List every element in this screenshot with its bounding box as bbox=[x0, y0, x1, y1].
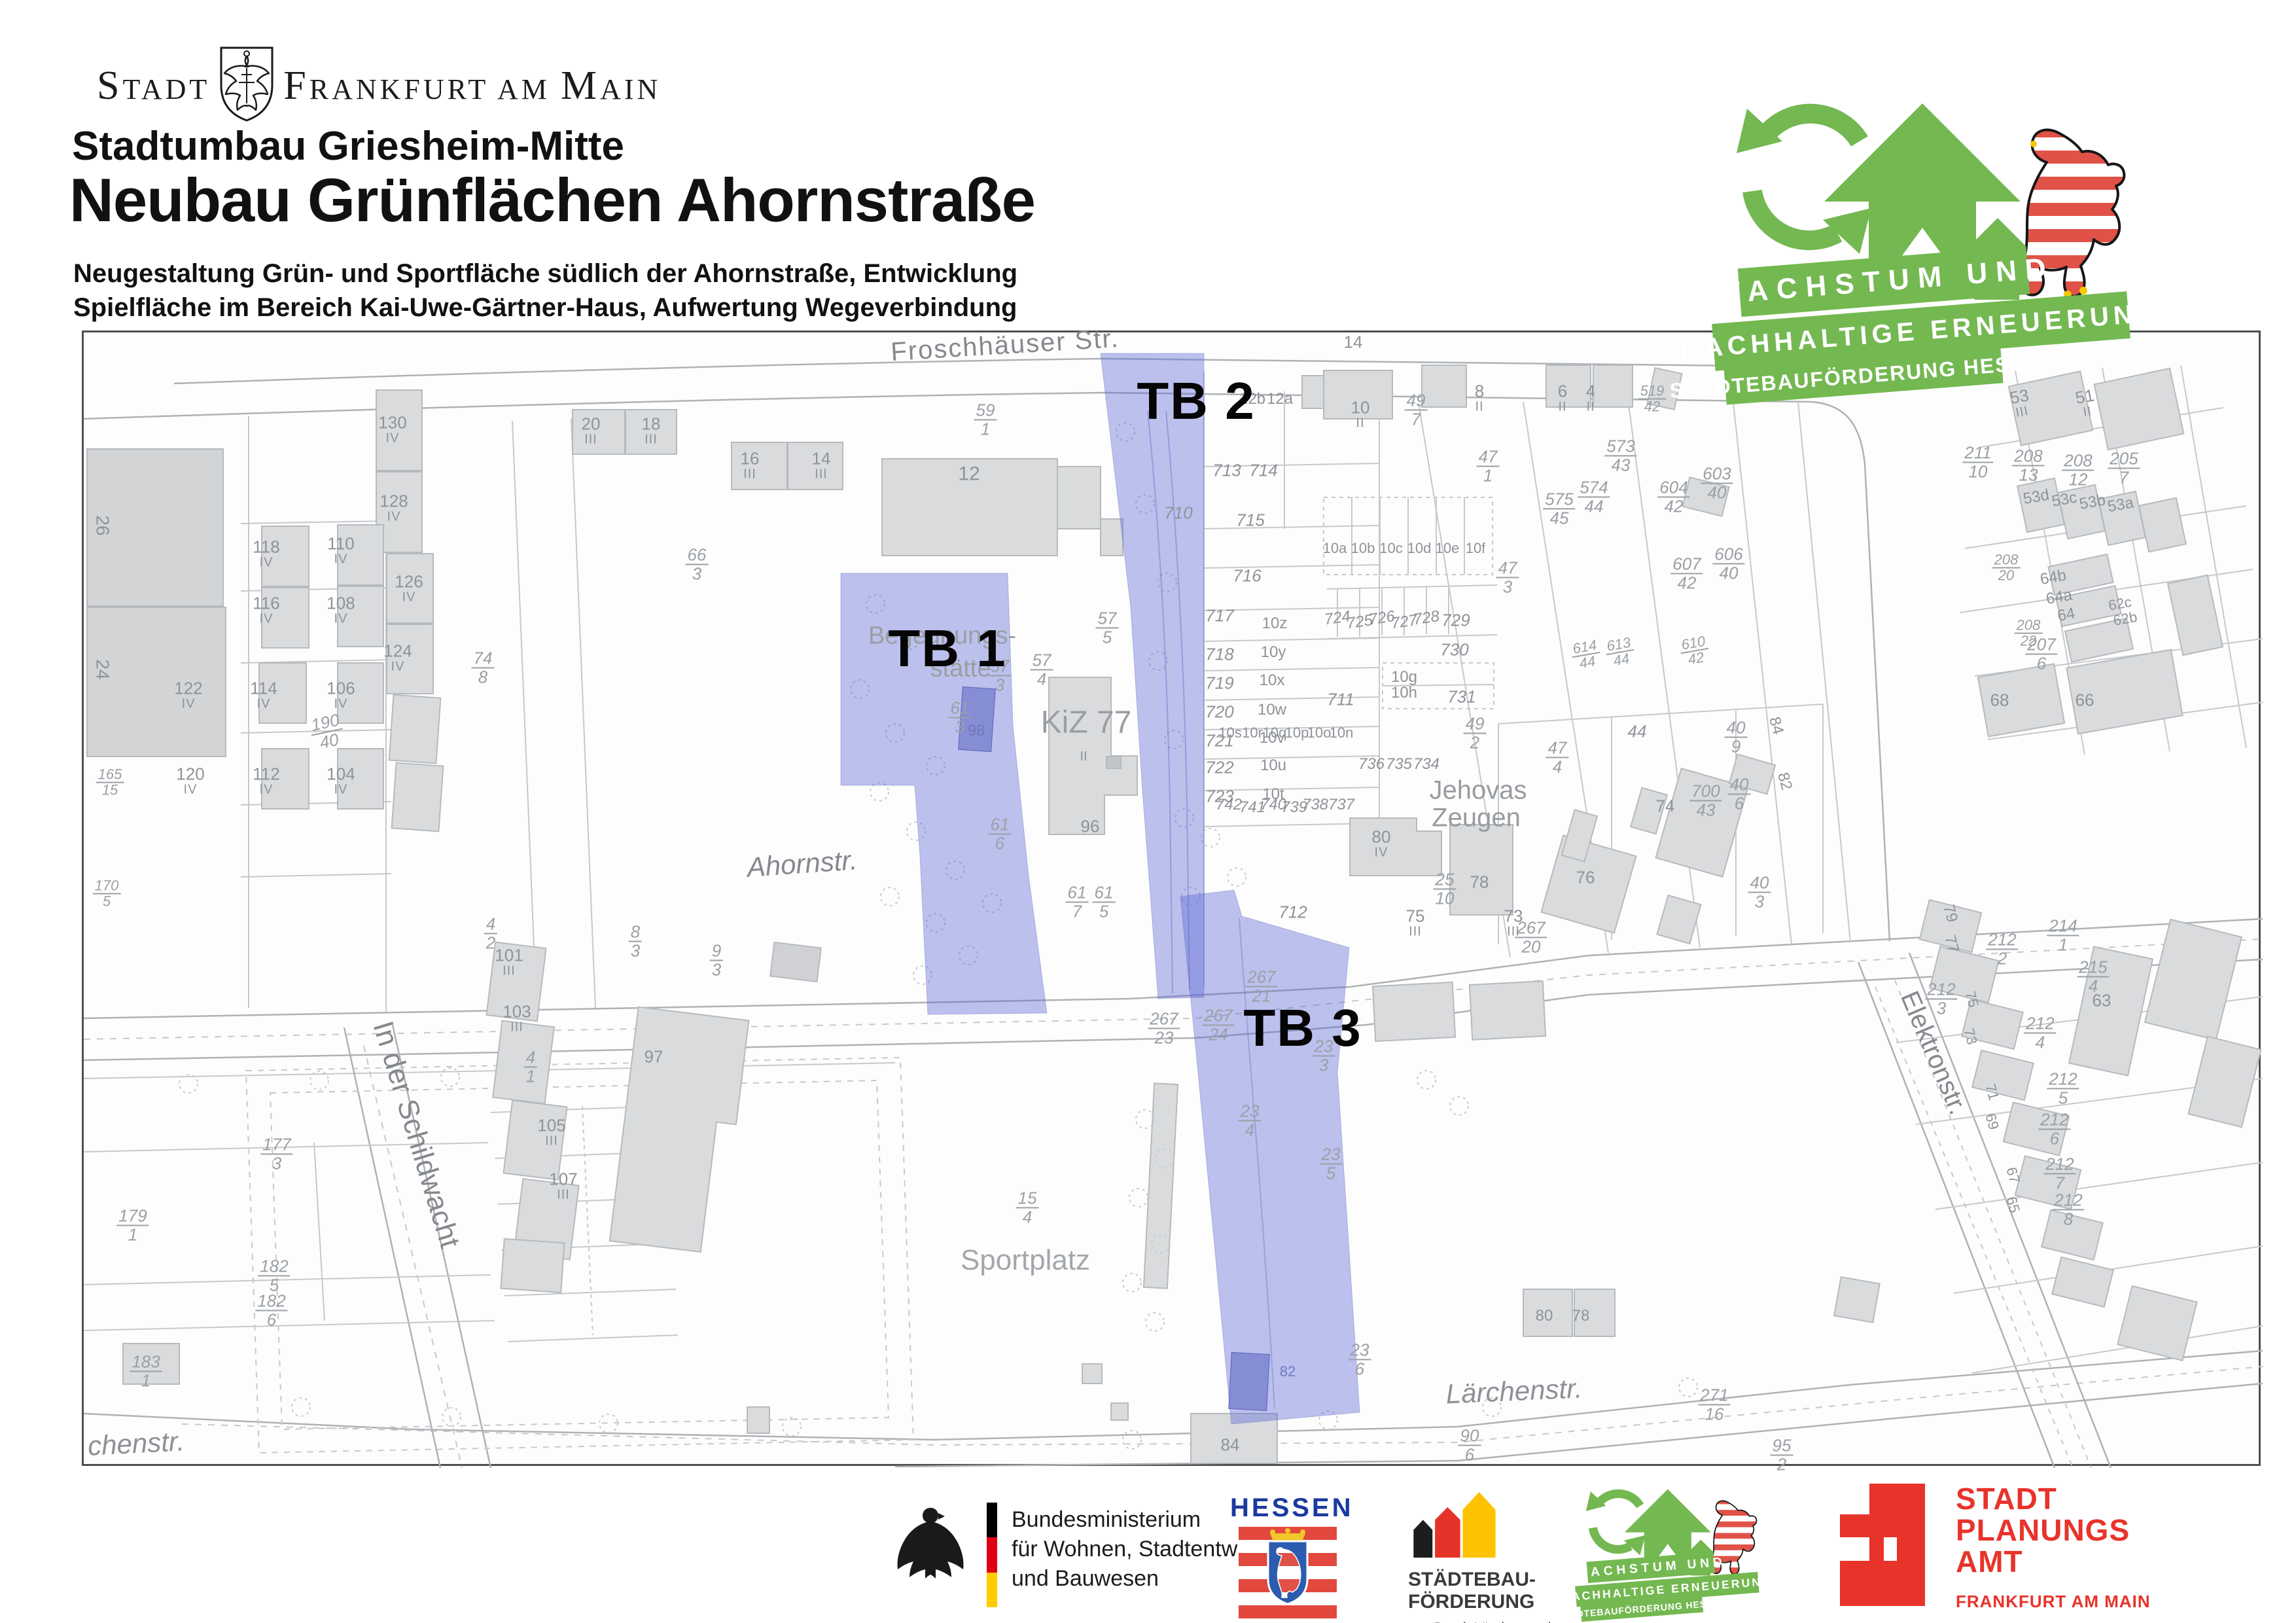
map-parcel-label: 103III bbox=[503, 1003, 531, 1034]
map-parcel-label: 718 bbox=[1205, 646, 1233, 664]
map-parcel-label: 2076 bbox=[2025, 635, 2057, 671]
map-parcel-label: 474 bbox=[1546, 739, 1569, 775]
map-parcel-label: 60340 bbox=[1701, 465, 1733, 501]
map-parcel-label: 26720 bbox=[1515, 919, 1547, 955]
map-parcel-label: 10e bbox=[1436, 541, 1460, 556]
map-parcel-label: 10n bbox=[1330, 726, 1354, 740]
subtitle-line1: Neugestaltung Grün- und Sportfläche südl… bbox=[73, 257, 1017, 291]
map-parcel-label: 1773 bbox=[260, 1135, 292, 1171]
map-parcel-label: 492 bbox=[1464, 715, 1487, 751]
map-name-label: Jehovas bbox=[1430, 776, 1527, 806]
map-parcel-label: 10h bbox=[1391, 685, 1417, 701]
map-parcel-label: 20820 bbox=[1992, 553, 2021, 584]
map-parcel-label: 1791 bbox=[116, 1207, 149, 1243]
map-parcel-label: 663 bbox=[686, 546, 709, 582]
map-parcel-label: 101III bbox=[495, 947, 523, 978]
map-parcel-label: 574 bbox=[1031, 651, 1053, 687]
stb-line2: FÖRDERUNG bbox=[1408, 1591, 1551, 1613]
map-parcel-label: 78 bbox=[1470, 874, 1489, 891]
map-parcel-label: 84 bbox=[1221, 1436, 1240, 1454]
map-parcel-label: 10a bbox=[1323, 541, 1347, 556]
map-parcel-label: 742 bbox=[1216, 797, 1242, 813]
map-parcel-label: 10g bbox=[1391, 669, 1417, 685]
map-parcel-label: 57444 bbox=[1578, 478, 1610, 514]
map-parcel-label: 126IV bbox=[395, 573, 423, 604]
map-parcel-label: 737 bbox=[1328, 797, 1354, 813]
map-parcel-label: 10w bbox=[1258, 702, 1286, 718]
map-parcel-label: 116IV bbox=[253, 595, 279, 626]
map-parcel-label: 2510 bbox=[1434, 870, 1457, 906]
map-parcel-label: 710 bbox=[1164, 505, 1192, 522]
map-parcel-label: 1826 bbox=[255, 1292, 287, 1328]
map-parcel-label: 76 bbox=[1576, 869, 1595, 887]
city-logo-stadt: STADT bbox=[97, 63, 210, 109]
map-parcel-label: 63 bbox=[2093, 992, 2111, 1010]
map-parcel-label: 10x bbox=[1260, 673, 1285, 688]
cadastral-map: 5911271371471571071671710z71810y71910x72… bbox=[82, 330, 2261, 1466]
map-parcel-label: 2154 bbox=[2077, 958, 2109, 994]
map-parcel-label: 12a bbox=[1267, 391, 1293, 407]
map-parcel-label: 722 bbox=[1205, 759, 1233, 777]
spa-line2: PLANUNGS bbox=[1956, 1514, 2151, 1546]
map-name-label: Lärchenstr. bbox=[1445, 1372, 1583, 1410]
funding-badge: WACHSTUM UND NACHHALTIGE ERNEUERUNG STÄD… bbox=[1713, 98, 2184, 406]
map-parcel-label: 10II bbox=[1351, 399, 1370, 430]
spa-subline: FRANKFURT AM MAIN bbox=[1956, 1592, 2151, 1612]
funding-badge-small: WACHSTUM UND NACHHALTIGE ERNEUERUNG STÄD… bbox=[1576, 1487, 1783, 1622]
three-houses-icon bbox=[1408, 1491, 1500, 1560]
map-parcel-label: 10o bbox=[1307, 726, 1332, 740]
map-parcel-label: 26 bbox=[93, 515, 112, 535]
map-parcel-label: 16515 bbox=[96, 768, 124, 798]
hessen-wordmark: HESSEN bbox=[1230, 1493, 1345, 1523]
plan-poster: STADT FRANKFURT A​M MAIN Stadtumbau Grie… bbox=[0, 0, 2296, 1623]
map-parcel-label: 60640 bbox=[1712, 545, 1744, 581]
map-parcel-label: 615 bbox=[1093, 883, 1116, 919]
map-parcel-label: 26723 bbox=[1148, 1010, 1180, 1046]
map-parcel-label: 105III bbox=[537, 1117, 565, 1148]
staedtebaufoerderung-logo: STÄDTEBAU- FÖRDERUNG von Bund, Ländern u… bbox=[1408, 1491, 1551, 1623]
map-parcel-label: 82 bbox=[1280, 1364, 1296, 1379]
subtitle-line2: Spielfläche im Bereich Kai-Uwe-Gärtner-H… bbox=[73, 291, 1017, 325]
map-parcel-label: 1831 bbox=[130, 1353, 162, 1389]
subtitle: Neugestaltung Grün- und Sportfläche südl… bbox=[73, 257, 1017, 325]
map-parcel-label: 26724 bbox=[1202, 1007, 1234, 1043]
stb-small1: von Bund, Ländern und bbox=[1408, 1620, 1551, 1623]
map-parcel-label: 61042 bbox=[1678, 633, 1711, 669]
hessen-logo: HESSEN bbox=[1230, 1493, 1345, 1622]
map-parcel-label: 720 bbox=[1205, 704, 1233, 721]
map-parcel-label: 473 bbox=[1496, 559, 1519, 595]
map-parcel-label: 41 bbox=[524, 1048, 537, 1084]
map-parcel-label: 497 bbox=[1405, 391, 1428, 427]
map-parcel-label: 471 bbox=[1477, 448, 1500, 484]
map-parcel-label: 719 bbox=[1205, 675, 1233, 692]
map-parcel-label: 715 bbox=[1236, 512, 1264, 529]
zone-label: TB 1 bbox=[888, 618, 1006, 679]
map-name-label: KiZ 77 bbox=[1041, 705, 1132, 741]
map-parcel-label: 617 bbox=[1066, 883, 1089, 919]
map-parcel-label: 2124 bbox=[2024, 1014, 2056, 1050]
map-parcel-label: 591 bbox=[974, 401, 997, 437]
map-parcel-label: 729 bbox=[1441, 612, 1470, 630]
map-parcel-label: 61344 bbox=[1604, 635, 1636, 670]
stb-line1: STÄDTEBAU- bbox=[1408, 1569, 1551, 1591]
map-parcel-label: 6II bbox=[1558, 383, 1567, 414]
map-parcel-label: 122IV bbox=[174, 680, 202, 711]
map-parcel-label: 735 bbox=[1386, 757, 1412, 772]
map-parcel-label: 1825 bbox=[258, 1257, 290, 1293]
spa-line3: AMT bbox=[1956, 1546, 2151, 1577]
map-parcel-label: 730 bbox=[1440, 641, 1468, 659]
map-parcel-label: 10c bbox=[1379, 541, 1402, 556]
map-parcel-label: 406 bbox=[1728, 776, 1751, 811]
map-parcel-label: 66 bbox=[2075, 692, 2094, 709]
map-parcel-label: 108IV bbox=[327, 595, 355, 626]
project-title: Stadtumbau Griesheim-Mitte bbox=[72, 123, 624, 169]
map-parcel-label: 106IV bbox=[327, 680, 355, 711]
map-parcel-label: 409 bbox=[1725, 719, 1748, 755]
map-name-label: Sportplatz bbox=[961, 1244, 1090, 1277]
map-parcel-label: 80 bbox=[1536, 1308, 1553, 1324]
map-parcel-label: 14 bbox=[1344, 334, 1363, 351]
map-parcel-label: 64 bbox=[2057, 606, 2077, 625]
map-parcel-label: 96 bbox=[1081, 818, 1100, 836]
map-parcel-label: 403 bbox=[1748, 874, 1771, 910]
map-parcel-label: 97 bbox=[645, 1048, 663, 1066]
map-parcel-label: 738 bbox=[1302, 797, 1328, 813]
map-parcel-label: 2126 bbox=[2038, 1111, 2070, 1147]
map-parcel-label: 21110 bbox=[1962, 444, 1993, 480]
map-parcel-label: 712 bbox=[1279, 904, 1307, 921]
map-parcel-label: 10u bbox=[1260, 758, 1286, 774]
map-parcel-label: 14III bbox=[812, 450, 831, 481]
map-parcel-label: 952 bbox=[1771, 1436, 1793, 1472]
map-parcel-label: 4II bbox=[1586, 383, 1595, 414]
map-parcel-label: 2128 bbox=[2052, 1191, 2084, 1227]
map-parcel-label: 130IV bbox=[378, 414, 406, 445]
map-parcel-label: 154 bbox=[1016, 1189, 1039, 1225]
map-parcel-label: 110IV bbox=[327, 535, 354, 566]
map-parcel-label: 736 bbox=[1358, 757, 1385, 772]
map-parcel-label: 575 bbox=[1096, 609, 1119, 645]
map-parcel-label: 10z bbox=[1262, 616, 1288, 632]
map-parcel-label: 714 bbox=[1249, 462, 1277, 480]
map-parcel-label: 128IV bbox=[380, 493, 408, 524]
map-parcel-label: 2125 bbox=[2047, 1070, 2079, 1106]
map-parcel-label: 93 bbox=[710, 942, 723, 978]
map-parcel-label: 728 bbox=[1412, 609, 1440, 628]
map-parcel-label: 20813 bbox=[2012, 447, 2044, 483]
map-parcel-label: 83 bbox=[629, 923, 642, 959]
map-parcel-label: 16III bbox=[741, 450, 760, 481]
map-parcel-label: II bbox=[1080, 750, 1087, 763]
map-parcel-label: 713 bbox=[1212, 462, 1241, 480]
map-name-label: chenstr. bbox=[87, 1425, 185, 1462]
map-parcel-label: 80IV bbox=[1372, 829, 1391, 859]
planning-office-mark-icon bbox=[1840, 1483, 1928, 1609]
map-parcel-label: 120IV bbox=[176, 766, 204, 796]
spa-line1: STADT bbox=[1956, 1483, 2151, 1514]
map-parcel-label: 70043 bbox=[1689, 782, 1722, 818]
map-parcel-label: 236 bbox=[1349, 1341, 1371, 1377]
map-parcel-label: 104IV bbox=[327, 766, 355, 796]
map-parcel-label: 10b bbox=[1351, 541, 1375, 556]
map-parcel-label: 10s bbox=[1218, 726, 1241, 740]
map-parcel-label: 118IV bbox=[253, 539, 279, 569]
map-parcel-label: 60742 bbox=[1670, 555, 1703, 591]
map-parcel-label: 124IV bbox=[383, 643, 412, 673]
map-parcel-label: 24 bbox=[93, 659, 112, 679]
map-parcel-label: 12 bbox=[958, 465, 980, 485]
map-parcel-label: 10r bbox=[1242, 726, 1263, 740]
map-parcel-label: 20III bbox=[582, 416, 601, 446]
map-parcel-label: 74 bbox=[1656, 798, 1675, 815]
map-parcel-label: 731 bbox=[1447, 688, 1475, 706]
map-parcel-label: 2127 bbox=[2043, 1155, 2075, 1191]
map-parcel-label: 114IV bbox=[250, 680, 277, 711]
zone-label: TB 2 bbox=[1137, 371, 1255, 431]
map-parcel-label: 60442 bbox=[1657, 478, 1689, 514]
city-logo: STADT FRANKFURT A​M MAIN bbox=[97, 46, 661, 126]
map-parcel-label: 20812 bbox=[2062, 452, 2094, 488]
map-parcel-label: 61444 bbox=[1570, 637, 1602, 673]
map-parcel-label: 2057 bbox=[2108, 450, 2140, 486]
map-parcel-label: 10y bbox=[1261, 645, 1286, 660]
map-parcel-label: 235 bbox=[1320, 1145, 1343, 1181]
map-parcel-label: 75III bbox=[1406, 908, 1425, 938]
federal-eagle-icon bbox=[891, 1503, 970, 1588]
map-parcel-label: 51942 bbox=[1638, 384, 1667, 415]
map-parcel-label: 748 bbox=[472, 649, 495, 685]
map-parcel-label: 68 bbox=[1990, 692, 2009, 709]
page-title: Neubau Grünflächen Ahornstraße bbox=[69, 165, 1035, 236]
map-parcel-label: 57545 bbox=[1543, 490, 1575, 526]
map-parcel-label: 616 bbox=[989, 815, 1012, 851]
map-parcel-label: 107III bbox=[549, 1171, 577, 1202]
map-parcel-label: 234 bbox=[1239, 1102, 1262, 1138]
stadtplanungsamt-logo: STADT PLANUNGS AMT FRANKFURT AM MAIN bbox=[1840, 1483, 2151, 1612]
map-parcel-label: 57343 bbox=[1604, 437, 1636, 473]
map-parcel-label: 44 bbox=[1628, 723, 1647, 741]
map-parcel-label: 10p bbox=[1285, 726, 1309, 740]
map-parcel-label: 717 bbox=[1205, 607, 1233, 625]
german-flag-stripe bbox=[987, 1503, 997, 1607]
map-parcel-label: 2122 bbox=[1986, 931, 2018, 967]
map-parcel-label: 10f bbox=[1466, 541, 1486, 556]
map-parcel-label: 8II bbox=[1475, 383, 1484, 414]
map-parcel-label: 78 bbox=[1572, 1308, 1590, 1324]
zone-label: TB 3 bbox=[1243, 998, 1362, 1058]
map-parcel-label: 1705 bbox=[93, 879, 121, 910]
map-parcel-label: 18III bbox=[642, 416, 661, 446]
map-parcel-label: 711 bbox=[1327, 691, 1354, 709]
map-parcel-label: 98 bbox=[968, 723, 985, 739]
map-parcel-label: 734 bbox=[1413, 757, 1439, 772]
map-parcel-label: 2141 bbox=[2047, 917, 2079, 953]
map-parcel-label: 10d bbox=[1407, 541, 1432, 556]
hessen-crest-icon bbox=[1239, 1527, 1337, 1618]
frankfurt-eagle-crest-icon bbox=[219, 46, 274, 126]
map-parcel-label: 27116 bbox=[1698, 1386, 1730, 1422]
map-parcel-label: 906 bbox=[1458, 1427, 1481, 1463]
city-logo-name: FRANKFURT A​M MAIN bbox=[283, 63, 661, 109]
map-name-label: Zeugen bbox=[1432, 804, 1521, 833]
map-parcel-label: 112IV bbox=[253, 766, 279, 796]
map-parcel-label: 10q bbox=[1263, 726, 1287, 740]
map-parcel-label: 716 bbox=[1233, 567, 1261, 585]
